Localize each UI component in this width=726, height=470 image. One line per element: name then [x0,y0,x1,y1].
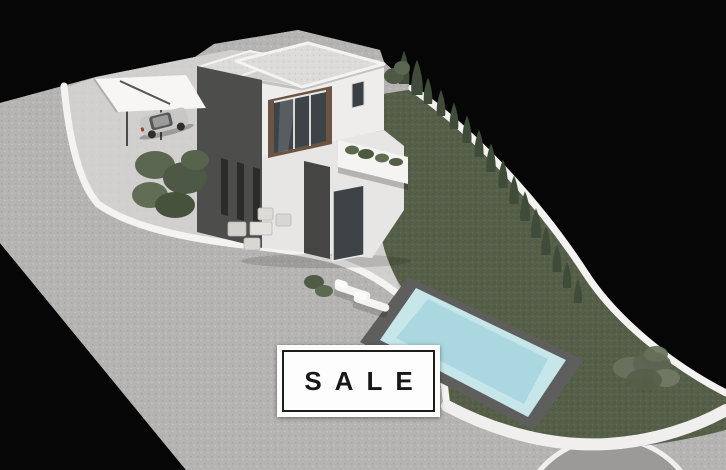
planter-plant [375,154,389,163]
tree-foliage [626,369,662,391]
villa-feature-pillar [304,161,330,259]
slit-window [237,162,244,221]
side-window [352,81,364,108]
slit-window [221,158,228,216]
planter-plant [345,146,359,155]
patio-chair [244,238,260,250]
sale-sign-label: SALE [304,368,425,394]
bush-foliage [155,192,195,218]
sale-sign: SALE [277,345,440,417]
bush-foliage [315,285,333,297]
planter-plant [389,158,403,166]
sale-sign-border: SALE [282,350,435,412]
patio-chair [276,214,291,226]
bush-foliage [181,150,209,170]
glass-door [333,185,364,261]
tree-foliage [644,346,668,362]
patio-table [250,222,272,235]
planter-plant [358,149,374,159]
patio-sofa [228,222,246,236]
patio-chair [258,208,273,220]
villa-render-screenshot: SALE [0,0,726,470]
bush-foliage [394,61,410,75]
